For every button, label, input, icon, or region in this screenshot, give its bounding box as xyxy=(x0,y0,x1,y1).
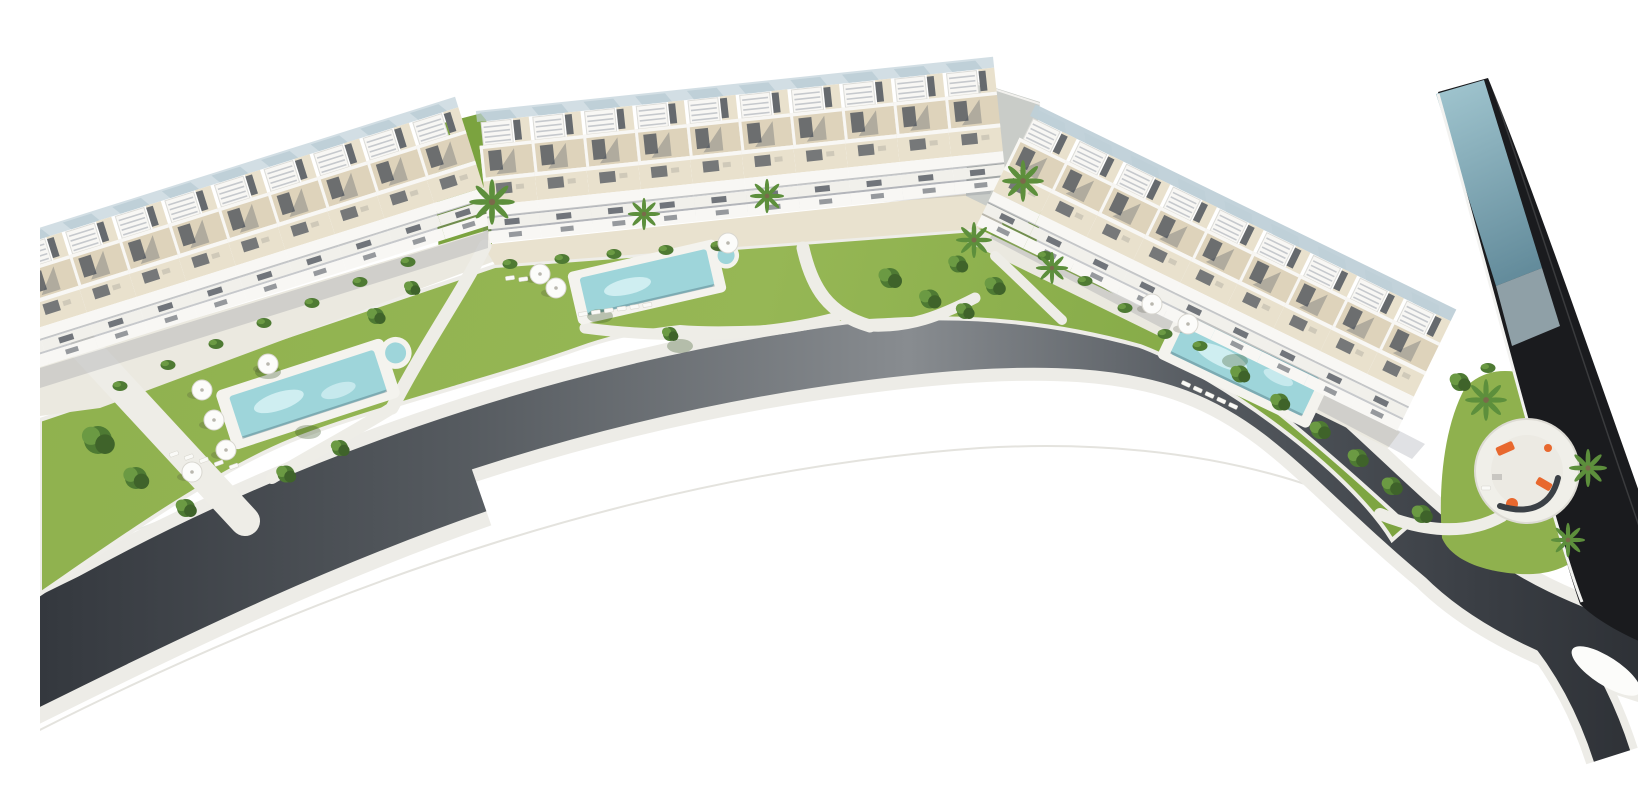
playground xyxy=(1475,419,1579,523)
palm-tree xyxy=(628,198,660,230)
tree-shadow xyxy=(667,339,693,353)
bush xyxy=(1193,341,1208,351)
bush xyxy=(113,381,128,391)
palm-tree xyxy=(956,222,992,258)
bush xyxy=(659,245,674,255)
palm-tree xyxy=(1002,160,1044,202)
palm-tree xyxy=(1551,523,1585,557)
palm-tree xyxy=(1465,379,1507,421)
palm-tree xyxy=(1036,252,1068,284)
bush xyxy=(607,249,622,259)
tree-shadow xyxy=(295,425,321,439)
bush xyxy=(257,318,272,328)
aerial-render: Aerial 3D render — curved residential de… xyxy=(40,16,1638,789)
lounger xyxy=(1482,486,1491,490)
bush xyxy=(161,360,176,370)
bush xyxy=(503,259,518,269)
bush xyxy=(305,298,320,308)
bush xyxy=(1118,303,1133,313)
palm-tree xyxy=(1569,449,1607,487)
palm-tree xyxy=(469,179,515,225)
scene-svg: Aerial 3D render — curved residential de… xyxy=(40,16,1638,789)
bush xyxy=(1078,276,1093,286)
bush xyxy=(401,257,416,267)
bush xyxy=(1158,329,1173,339)
bush xyxy=(353,277,368,287)
tree-shadow xyxy=(1222,354,1248,368)
bush xyxy=(209,339,224,349)
bush xyxy=(1481,363,1496,373)
palm-tree xyxy=(750,179,784,213)
bush xyxy=(555,254,570,264)
